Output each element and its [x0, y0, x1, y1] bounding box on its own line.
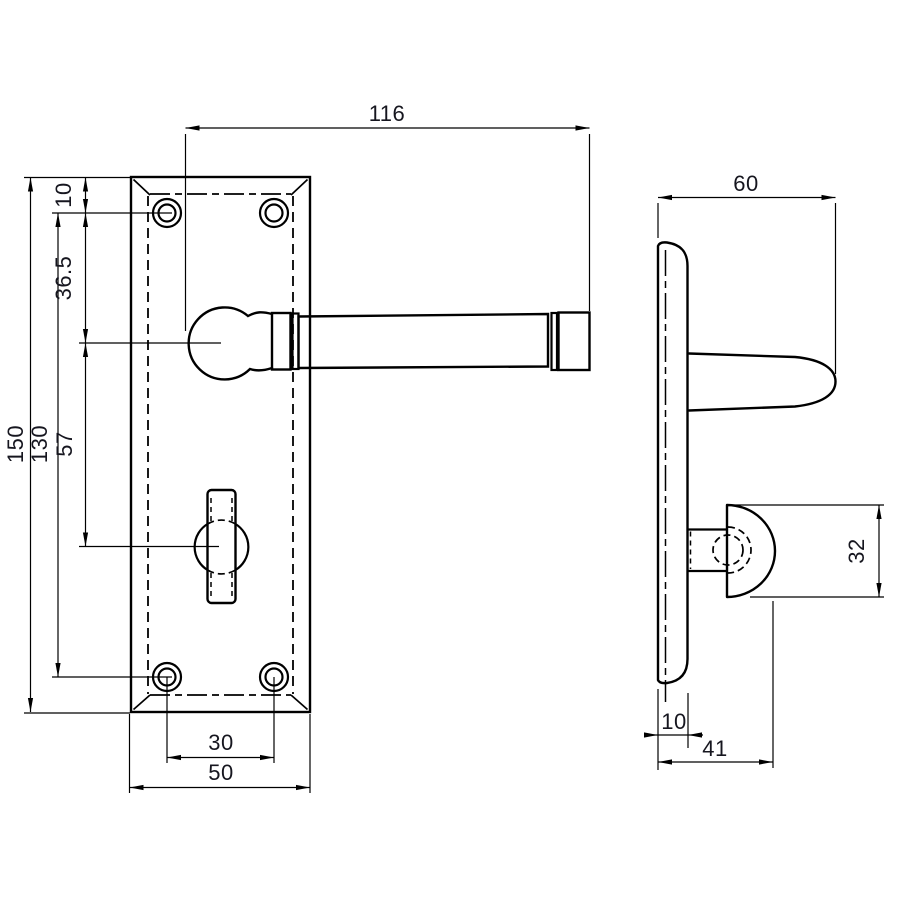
arrowhead [688, 732, 702, 737]
dimensions-front: 116 150 130 10 36.5 57 30 [3, 101, 590, 793]
arrowhead [55, 663, 60, 677]
arrowhead [83, 199, 88, 213]
backplate-profile [658, 242, 688, 683]
dimensions-side: 60 32 10 41 [644, 171, 884, 770]
arrowhead [83, 178, 88, 192]
arrowhead [83, 329, 88, 343]
lever-profile [689, 354, 836, 411]
arrowhead [28, 178, 33, 192]
arrowhead [83, 343, 88, 357]
arrowhead [876, 505, 881, 519]
lever-collar [272, 313, 291, 370]
dim-label-plate-thickness: 10 [661, 709, 686, 734]
dim-label-overall-projection: 60 [733, 171, 758, 196]
arrowhead [260, 755, 274, 760]
side-view [658, 242, 836, 702]
arrowhead [644, 732, 658, 737]
arrowhead [83, 213, 88, 227]
dim-label-lever-to-thumbturn: 57 [52, 431, 77, 456]
dim-label-thumbturn-height: 32 [844, 538, 869, 563]
arrowhead [759, 759, 773, 764]
thumbturn-side [688, 505, 775, 597]
technical-drawing-canvas: 116 150 130 10 36.5 57 30 [0, 0, 900, 900]
arrowhead [186, 125, 200, 130]
arrowhead [576, 125, 590, 130]
backplate-outline [131, 177, 310, 712]
dim-label-screw-centres-vertical: 130 [27, 425, 52, 463]
arrowhead [55, 213, 60, 227]
arrowhead [83, 533, 88, 547]
arrowhead [876, 583, 881, 597]
corner-chamfer-bottom-right [291, 695, 308, 710]
dim-label-screw-to-lever: 36.5 [51, 256, 76, 301]
corner-chamfer-top-left [134, 180, 151, 196]
front-view [131, 177, 590, 712]
thumbturn-stem [688, 530, 727, 572]
dim-label-plate-width: 50 [208, 760, 233, 785]
arrowhead [822, 195, 836, 200]
thumbturn-spindle-hidden-outer [728, 527, 751, 573]
lever-grip-bar [299, 314, 549, 368]
lever-end-ring [552, 313, 558, 370]
arrowhead [658, 759, 672, 764]
dim-label-lever-length: 116 [369, 101, 406, 126]
arrowhead [130, 785, 144, 790]
thumbturn-rose-arc-right [236, 524, 249, 570]
dim-label-screw-centres-horizontal: 30 [208, 730, 233, 755]
drawing-svg: 116 150 130 10 36.5 57 30 [0, 0, 900, 900]
corner-chamfer-top-right [291, 180, 308, 196]
arrowhead [296, 785, 310, 790]
arrowhead [28, 698, 33, 712]
arrowhead [167, 755, 181, 760]
arrowhead [658, 195, 672, 200]
dim-label-thumbturn-projection: 41 [702, 736, 727, 761]
corner-chamfer-bottom-left [134, 695, 151, 710]
thumbturn-bar-edge-marks [211, 498, 232, 599]
screw-hole-top-right [260, 199, 288, 227]
lever-end-cap [559, 313, 590, 371]
dim-label-top-edge-to-screw: 10 [51, 182, 76, 207]
dim-label-plate-height: 150 [3, 425, 28, 463]
